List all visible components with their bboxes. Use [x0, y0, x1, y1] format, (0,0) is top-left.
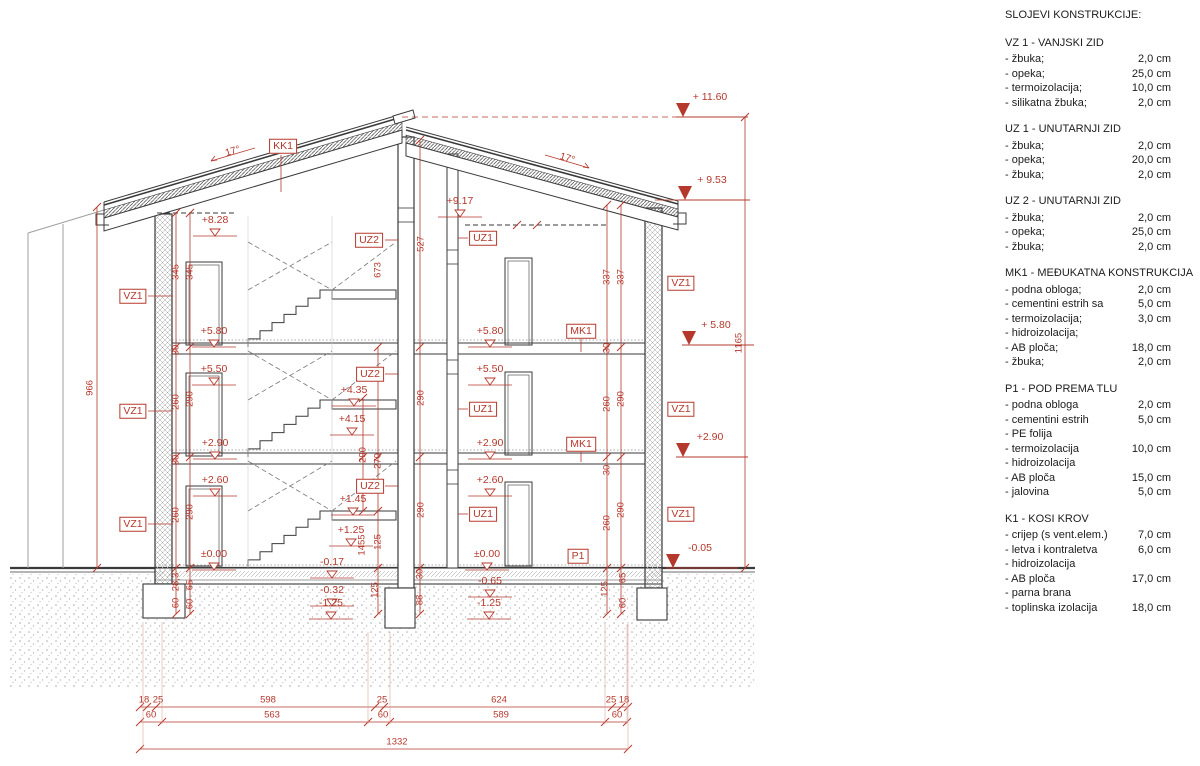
layer-thickness: 6,0 cm: [1132, 543, 1171, 558]
legend-section-heading: K1 - KOSI KROV: [1005, 512, 1200, 527]
adjacent-building-outline: [28, 210, 104, 568]
layer-thickness: 5,0 cm: [1132, 485, 1171, 500]
layer-name: - jalovina: [1005, 485, 1049, 500]
dashed-level-lines: [157, 213, 608, 225]
legend-layer-row: - termoizolacija10,0 cm: [1005, 442, 1171, 457]
legend-section-heading: UZ 2 - UNUTARNJI ZID: [1005, 194, 1200, 209]
construction-layers-legend: SLOJEVI KONSTRUKCIJE: VZ 1 - VANJSKI ZID…: [1005, 8, 1200, 627]
layer-thickness: 2,0 cm: [1132, 398, 1171, 413]
legend-section: K1 - KOSI KROV- crijep (s vent.elem.)7,0…: [1005, 512, 1200, 616]
layer-name: - žbuka;: [1005, 139, 1044, 154]
terrain: [10, 568, 755, 687]
legend-section-heading: UZ 1 - UNUTARNJI ZID: [1005, 122, 1200, 137]
layer-name: - PE folija: [1005, 427, 1052, 442]
layer-name: - podna obloga: [1005, 398, 1078, 413]
legend-layer-row: - žbuka;2,0 cm: [1005, 240, 1171, 255]
legend-layer-row: - cementini estrih sa5,0 cm: [1005, 297, 1171, 312]
layer-thickness: 2,0 cm: [1132, 139, 1171, 154]
legend-section-heading: VZ 1 - VANJSKI ZID: [1005, 36, 1200, 51]
layer-thickness: [1165, 427, 1171, 442]
legend-layer-row: - žbuka;2,0 cm: [1005, 168, 1171, 183]
layer-thickness: 7,0 cm: [1132, 528, 1171, 543]
legend-layer-row: - jalovina5,0 cm: [1005, 485, 1171, 500]
legend-layer-row: - PE folija: [1005, 427, 1171, 442]
layer-name: - termoizolacija;: [1005, 312, 1082, 327]
layer-name: - termoizolacija: [1005, 442, 1079, 457]
legend-section: UZ 2 - UNUTARNJI ZID- žbuka;2,0 cm- opek…: [1005, 194, 1200, 254]
layer-name: - žbuka;: [1005, 168, 1044, 183]
legend-layer-row: - termoizolacija;10,0 cm: [1005, 81, 1171, 96]
layer-name: - žbuka;: [1005, 355, 1044, 370]
layer-thickness: 2,0 cm: [1132, 168, 1171, 183]
layer-name: - toplinska izolacija: [1005, 601, 1097, 616]
legend-layer-row: - AB ploča15,0 cm: [1005, 471, 1171, 486]
layer-name: - opeka;: [1005, 67, 1045, 82]
layer-thickness: 5,0 cm: [1132, 413, 1171, 428]
legend-section: MK1 - MEĐUKATNA KONSTRUKCIJA- podna oblo…: [1005, 266, 1200, 370]
layer-thickness: 2,0 cm: [1132, 96, 1171, 111]
layer-thickness: 2,0 cm: [1132, 240, 1171, 255]
legend-section: UZ 1 - UNUTARNJI ZID- žbuka;2,0 cm- opek…: [1005, 122, 1200, 182]
layer-name: - AB ploča;: [1005, 341, 1058, 356]
layer-name: - žbuka;: [1005, 211, 1044, 226]
layer-thickness: 15,0 cm: [1126, 471, 1171, 486]
layer-thickness: 20,0 cm: [1126, 153, 1171, 168]
layer-thickness: 10,0 cm: [1126, 81, 1171, 96]
legend-layer-row: - žbuka;2,0 cm: [1005, 211, 1171, 226]
layer-thickness: 2,0 cm: [1132, 211, 1171, 226]
layer-thickness: 25,0 cm: [1126, 225, 1171, 240]
legend-layer-row: - crijep (s vent.elem.)7,0 cm: [1005, 528, 1171, 543]
layer-thickness: 18,0 cm: [1126, 341, 1171, 356]
layer-name: - AB ploča: [1005, 471, 1055, 486]
legend-layer-row: - AB ploča;18,0 cm: [1005, 341, 1171, 356]
layer-name: - crijep (s vent.elem.): [1005, 528, 1108, 543]
layer-thickness: 10,0 cm: [1126, 442, 1171, 457]
layer-name: - hidroizolacija: [1005, 557, 1075, 572]
legend-layer-row: - hidroizolacija: [1005, 557, 1171, 572]
legend-sections: VZ 1 - VANJSKI ZID- žbuka;2,0 cm- opeka;…: [1005, 36, 1200, 616]
layer-thickness: 3,0 cm: [1132, 312, 1171, 327]
layer-thickness: 2,0 cm: [1132, 283, 1171, 298]
legend-title: SLOJEVI KONSTRUKCIJE:: [1005, 8, 1200, 23]
legend-layer-row: - žbuka;2,0 cm: [1005, 139, 1171, 154]
legend-layer-row: - opeka;25,0 cm: [1005, 67, 1171, 82]
legend-layer-row: - opeka;20,0 cm: [1005, 153, 1171, 168]
legend-layer-row: - letva i kontraletva6,0 cm: [1005, 543, 1171, 558]
layer-name: - termoizolacija;: [1005, 81, 1082, 96]
layer-name: - silikatna žbuka;: [1005, 96, 1087, 111]
layer-name: - hidroizolacija: [1005, 456, 1075, 471]
layer-thickness: [1165, 326, 1171, 341]
layer-thickness: 17,0 cm: [1126, 572, 1171, 587]
legend-layer-row: - podna obloga;2,0 cm: [1005, 283, 1171, 298]
legend-layer-row: - cementini estrih5,0 cm: [1005, 413, 1171, 428]
legend-layer-row: - toplinska izolacija18,0 cm: [1005, 601, 1171, 616]
layer-name: - opeka;: [1005, 153, 1045, 168]
layer-thickness: [1165, 586, 1171, 601]
layer-thickness: 18,0 cm: [1126, 601, 1171, 616]
layer-name: - žbuka;: [1005, 240, 1044, 255]
legend-layer-row: - parna brana: [1005, 586, 1171, 601]
layer-name: - parna brana: [1005, 586, 1071, 601]
layer-name: - opeka;: [1005, 225, 1045, 240]
layer-name: - AB ploča: [1005, 572, 1055, 587]
legend-section-heading: P1 - POD PREMA TLU: [1005, 382, 1200, 397]
legend-layer-row: - žbuka;2,0 cm: [1005, 52, 1171, 67]
legend-layer-row: - opeka;25,0 cm: [1005, 225, 1171, 240]
layer-thickness: 2,0 cm: [1132, 52, 1171, 67]
layer-name: - žbuka;: [1005, 52, 1044, 67]
layer-name: - cementini estrih: [1005, 413, 1089, 428]
legend-layer-row: - hidroizolacija: [1005, 456, 1171, 471]
layer-thickness: 5,0 cm: [1132, 297, 1171, 312]
legend-layer-row: - silikatna žbuka;2,0 cm: [1005, 96, 1171, 111]
legend-layer-row: - hidroizolacija;: [1005, 326, 1171, 341]
layer-thickness: [1165, 557, 1171, 572]
layer-name: - hidroizolacija;: [1005, 326, 1078, 341]
layer-name: - cementini estrih sa: [1005, 297, 1103, 312]
building-section-drawing-page: KK1UZ2UZ1VZ1VZ1MK1UZ2UZ1VZ1VZ1MK1UZ2UZ1V…: [0, 0, 1200, 766]
legend-layer-row: - AB ploča17,0 cm: [1005, 572, 1171, 587]
legend-layer-row: - termoizolacija;3,0 cm: [1005, 312, 1171, 327]
legend-section-heading: MK1 - MEĐUKATNA KONSTRUKCIJA: [1005, 266, 1200, 281]
legend-layer-row: - podna obloga2,0 cm: [1005, 398, 1171, 413]
layer-thickness: [1165, 456, 1171, 471]
layer-thickness: 2,0 cm: [1132, 355, 1171, 370]
layer-thickness: 25,0 cm: [1126, 67, 1171, 82]
layer-name: - podna obloga;: [1005, 283, 1081, 298]
layer-name: - letva i kontraletva: [1005, 543, 1097, 558]
legend-section: P1 - POD PREMA TLU- podna obloga2,0 cm- …: [1005, 382, 1200, 500]
legend-section: VZ 1 - VANJSKI ZID- žbuka;2,0 cm- opeka;…: [1005, 36, 1200, 111]
legend-layer-row: - žbuka;2,0 cm: [1005, 355, 1171, 370]
